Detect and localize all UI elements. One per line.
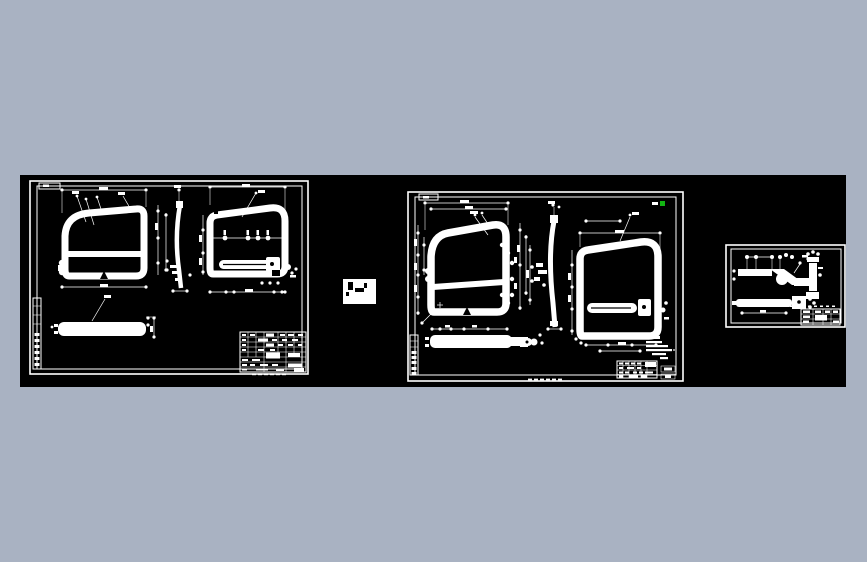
sheet-2-title-block [617,361,675,379]
cad-preview-page [0,0,867,562]
sheet-1-title-block [240,332,306,372]
sheet-1-front-view [58,187,168,289]
sheet-1-bottom-view [51,295,156,339]
highlight-marker [660,201,665,206]
sheet-2-bottom-view [425,325,544,348]
sheet-2-side-view [526,201,563,331]
drawing-canvas[interactable] [20,175,846,387]
detail-callout-box [343,279,376,304]
sheet-3-frame [726,245,845,327]
sheet-2-front-view [414,200,528,325]
sheet-2-rear-view [568,212,669,353]
drawing-canvas-svg [20,175,846,387]
sheet-3-bracket-views [732,250,823,314]
sheet-1-side-view [165,185,191,293]
sheet-1-rear-view [199,184,298,294]
